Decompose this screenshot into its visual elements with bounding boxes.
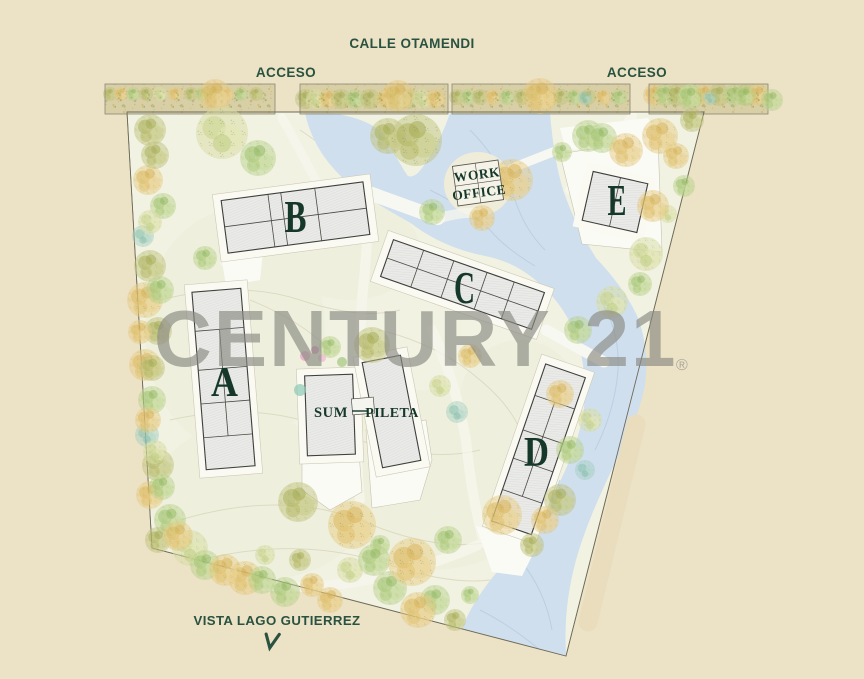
svg-text:ACCESO: ACCESO — [607, 65, 667, 80]
svg-text:CENTURY 21: CENTURY 21 — [154, 294, 677, 383]
svg-text:D: D — [524, 430, 549, 476]
svg-text:VISTA LAGO GUTIERREZ: VISTA LAGO GUTIERREZ — [194, 613, 361, 628]
svg-text:SUM: SUM — [314, 405, 348, 421]
svg-text:®: ® — [676, 357, 688, 374]
svg-text:B: B — [285, 191, 307, 242]
svg-text:PILETA: PILETA — [365, 406, 419, 421]
svg-text:E: E — [608, 176, 627, 225]
svg-text:ACCESO: ACCESO — [256, 65, 316, 80]
svg-text:CALLE OTAMENDI: CALLE OTAMENDI — [349, 36, 474, 51]
